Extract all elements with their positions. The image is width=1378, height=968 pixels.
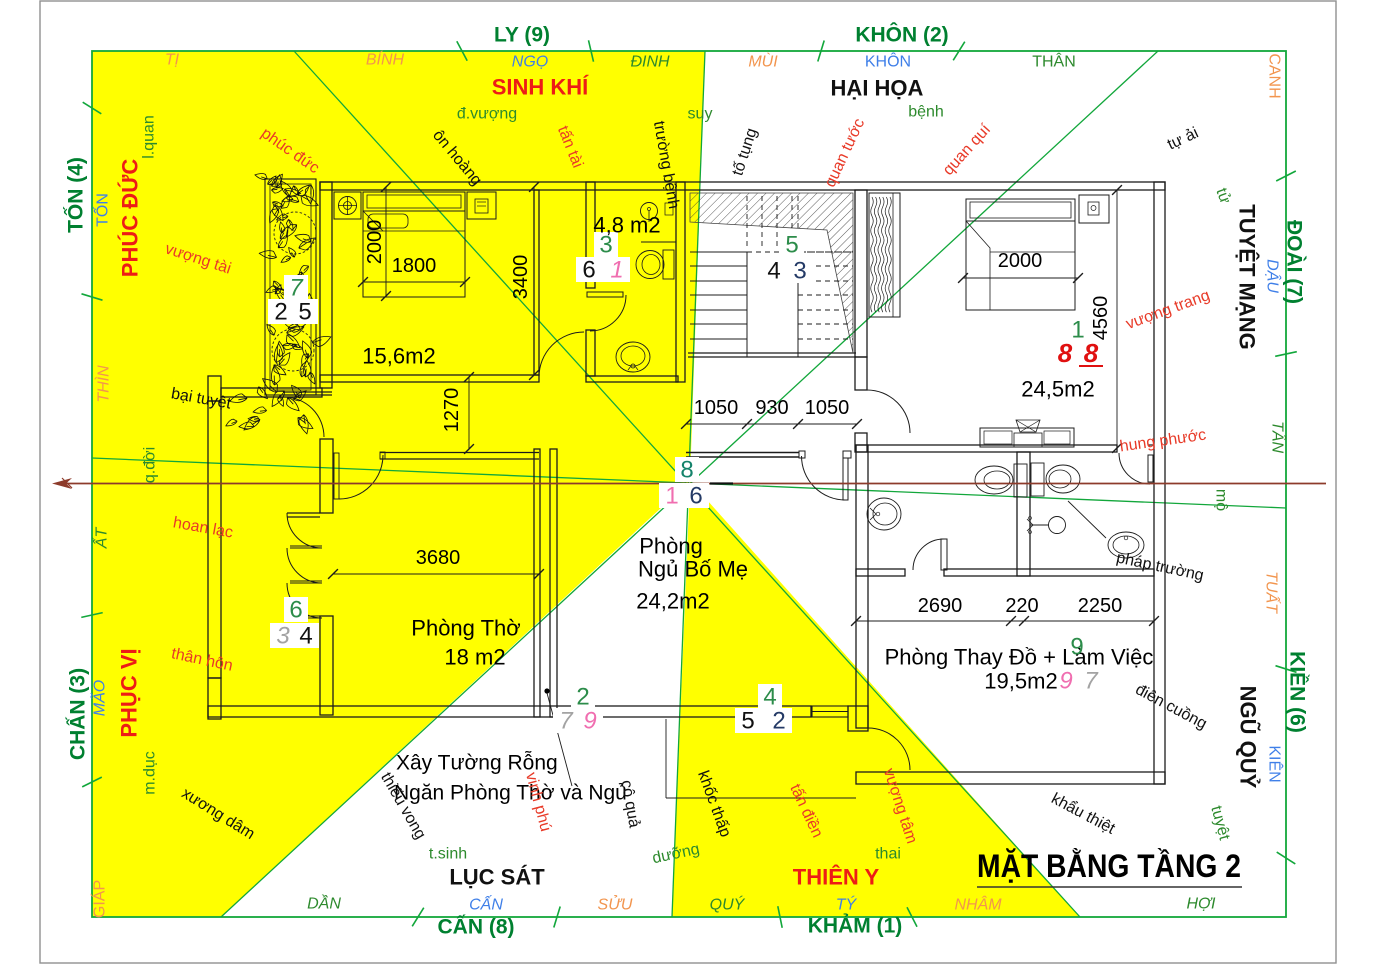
svg-text:2250: 2250 — [1078, 595, 1123, 617]
svg-text:19,5m2: 19,5m2 — [984, 669, 1057, 694]
svg-text:TUẤT: TUẤT — [1263, 571, 1282, 614]
svg-text:ĐINH: ĐINH — [630, 54, 670, 71]
svg-text:9: 9 — [1070, 634, 1083, 661]
svg-text:Ngăn Phòng Thờ và Ngủ: Ngăn Phòng Thờ và Ngủ — [394, 782, 627, 805]
svg-text:DẦN: DẦN — [307, 894, 341, 913]
svg-text:t.sinh: t.sinh — [429, 846, 467, 863]
svg-text:8: 8 — [1058, 338, 1073, 368]
svg-text:LỤC SÁT: LỤC SÁT — [449, 865, 545, 890]
svg-text:bệnh: bệnh — [908, 104, 944, 121]
svg-text:5: 5 — [298, 299, 311, 326]
svg-text:1050: 1050 — [694, 397, 739, 419]
svg-text:2000: 2000 — [364, 220, 386, 265]
svg-text:ĐOÀI (7): ĐOÀI (7) — [1283, 220, 1306, 304]
svg-text:2: 2 — [576, 684, 589, 711]
svg-text:KHẢM (1): KHẢM (1) — [808, 915, 903, 938]
svg-text:TỐN (4): TỐN (4) — [64, 157, 88, 233]
svg-text:HỢI: HỢI — [1187, 896, 1217, 913]
svg-text:Phòng: Phòng — [639, 534, 703, 559]
svg-text:6: 6 — [289, 597, 302, 624]
svg-text:CẤN: CẤN — [469, 895, 503, 914]
svg-text:6: 6 — [689, 483, 702, 510]
svg-text:2690: 2690 — [918, 595, 963, 617]
svg-text:PHỤC VỊ: PHỤC VỊ — [117, 648, 142, 737]
svg-text:4,8 m2: 4,8 m2 — [593, 213, 660, 238]
svg-text:MÃO: MÃO — [90, 680, 109, 716]
svg-text:TỊ: TỊ — [165, 52, 180, 69]
svg-text:QUÝ: QUÝ — [710, 895, 746, 914]
svg-text:MÙI: MÙI — [748, 52, 778, 71]
svg-text:24,5m2: 24,5m2 — [1021, 377, 1094, 402]
svg-text:l.quan: l.quan — [141, 115, 158, 159]
svg-text:PHÚC ĐỨC: PHÚC ĐỨC — [118, 159, 143, 278]
svg-text:9: 9 — [1059, 668, 1072, 695]
svg-text:9: 9 — [583, 708, 596, 735]
svg-text:mộ: mộ — [1213, 489, 1230, 511]
svg-text:4: 4 — [763, 684, 776, 711]
svg-text:thai: thai — [875, 846, 901, 863]
svg-text:KHÔN (2): KHÔN (2) — [855, 23, 948, 47]
svg-text:TÂN: TÂN — [1269, 421, 1288, 453]
svg-text:1: 1 — [665, 483, 678, 510]
svg-text:NHÂM: NHÂM — [954, 895, 1002, 914]
svg-text:7: 7 — [1084, 668, 1099, 695]
svg-text:5: 5 — [741, 708, 754, 735]
svg-text:1: 1 — [610, 257, 623, 284]
svg-text:4: 4 — [299, 623, 312, 650]
svg-text:q.đời: q.đời — [142, 447, 159, 483]
svg-text:m.dục: m.dục — [142, 751, 159, 795]
svg-text:8: 8 — [1084, 338, 1099, 368]
svg-text:Ngủ Bố Mẹ: Ngủ Bố Mẹ — [638, 557, 748, 582]
svg-text:NGŨ QUỶ: NGŨ QUỶ — [1236, 686, 1261, 789]
svg-text:3400: 3400 — [510, 255, 532, 300]
svg-text:7: 7 — [289, 275, 304, 302]
svg-text:18 m2: 18 m2 — [444, 645, 505, 670]
svg-text:CẤN (8): CẤN (8) — [438, 916, 515, 939]
svg-text:CHẤN (3): CHẤN (3) — [67, 668, 90, 760]
svg-text:THIÊN Y: THIÊN Y — [793, 865, 880, 890]
svg-text:LY (9): LY (9) — [494, 24, 550, 47]
svg-text:HẠI HỌA: HẠI HỌA — [831, 76, 924, 101]
svg-text:BÍNH: BÍNH — [366, 50, 405, 69]
svg-text:1: 1 — [1071, 317, 1084, 344]
svg-text:5: 5 — [785, 232, 798, 259]
svg-text:24,2m2: 24,2m2 — [636, 589, 709, 614]
svg-text:2000: 2000 — [998, 250, 1043, 272]
svg-text:1800: 1800 — [392, 255, 437, 277]
svg-text:1270: 1270 — [441, 388, 463, 433]
svg-text:3: 3 — [276, 623, 290, 650]
svg-text:4: 4 — [767, 258, 780, 285]
svg-text:Phòng Thờ: Phòng Thờ — [411, 616, 520, 641]
svg-text:2: 2 — [772, 708, 785, 735]
svg-text:MẶT BẰNG TẦNG 2: MẶT BẰNG TẦNG 2 — [977, 848, 1241, 884]
svg-text:NGỌ: NGỌ — [512, 54, 548, 71]
svg-text:TÝ: TÝ — [836, 895, 858, 914]
svg-text:CANH: CANH — [1266, 53, 1283, 98]
svg-text:THÌN: THÌN — [94, 365, 113, 403]
svg-text:3: 3 — [793, 258, 806, 285]
svg-text:1050: 1050 — [805, 397, 850, 419]
svg-text:DẬU: DẬU — [1264, 259, 1283, 293]
svg-text:Phòng Thay Đồ + Làm Việc: Phòng Thay Đồ + Làm Việc — [885, 645, 1154, 670]
svg-text:đ.vượng: đ.vượng — [457, 106, 517, 123]
svg-text:THÂN: THÂN — [1032, 52, 1076, 71]
svg-text:ẤT: ẤT — [92, 527, 111, 550]
svg-text:2: 2 — [274, 299, 287, 326]
svg-text:220: 220 — [1005, 595, 1038, 617]
svg-text:KHÔN: KHÔN — [865, 52, 911, 71]
svg-text:KIÊN: KIÊN — [1266, 745, 1285, 782]
svg-text:SỬU: SỬU — [598, 895, 633, 914]
svg-text:TỐN: TỐN — [92, 193, 112, 227]
svg-text:7: 7 — [559, 708, 574, 735]
svg-text:8: 8 — [680, 457, 693, 484]
svg-text:suy: suy — [688, 106, 713, 123]
svg-text:4560: 4560 — [1090, 296, 1112, 341]
svg-text:930: 930 — [755, 397, 788, 419]
svg-text:GIÁP: GIÁP — [90, 880, 109, 918]
svg-text:3680: 3680 — [416, 547, 461, 569]
svg-text:KIỀN (6): KIỀN (6) — [1286, 651, 1309, 733]
svg-text:6: 6 — [582, 257, 595, 284]
svg-text:TUYỆT MẠNG: TUYỆT MẠNG — [1235, 204, 1260, 349]
svg-text:15,6m2: 15,6m2 — [362, 344, 435, 369]
svg-text:SINH KHÍ: SINH KHÍ — [492, 75, 589, 100]
